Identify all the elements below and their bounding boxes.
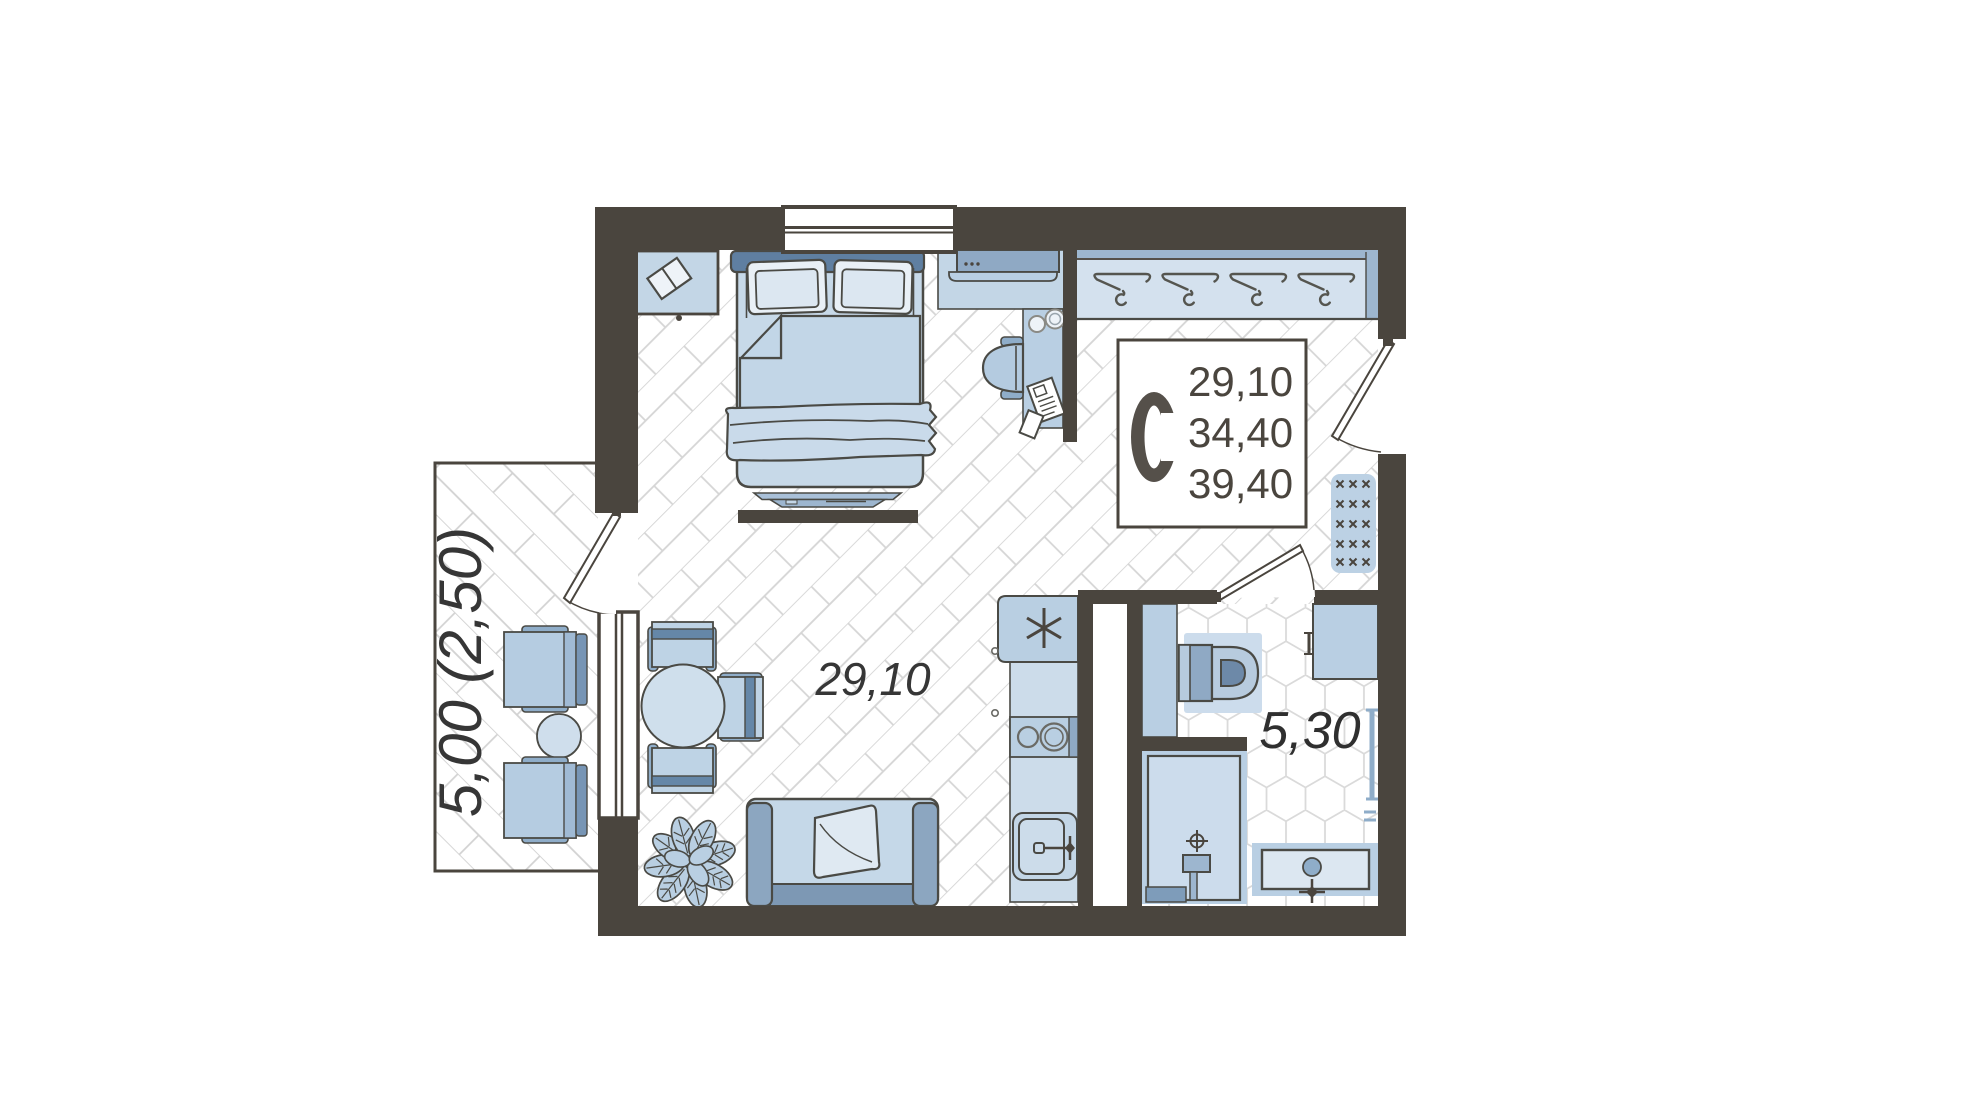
svg-text:34,40: 34,40: [1188, 409, 1293, 456]
svg-text:29,10: 29,10: [814, 653, 931, 705]
svg-text:5,30: 5,30: [1259, 702, 1360, 760]
svg-text:5,00 (2,50): 5,00 (2,50): [427, 527, 494, 817]
svg-text:29,10: 29,10: [1188, 358, 1293, 405]
svg-text:39,40: 39,40: [1188, 460, 1293, 507]
